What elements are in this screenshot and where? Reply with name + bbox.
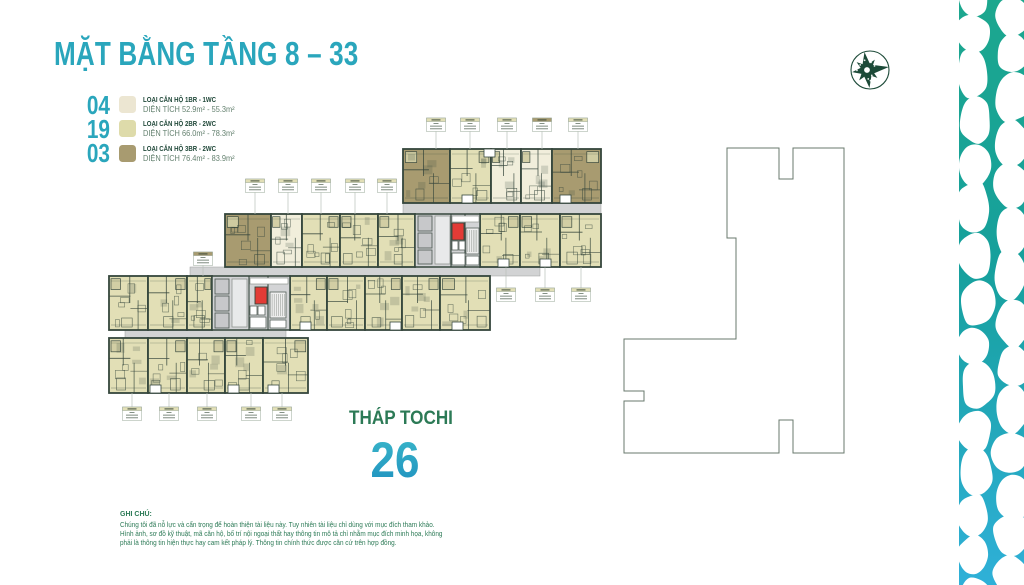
svg-text:26: 26 <box>371 431 420 486</box>
